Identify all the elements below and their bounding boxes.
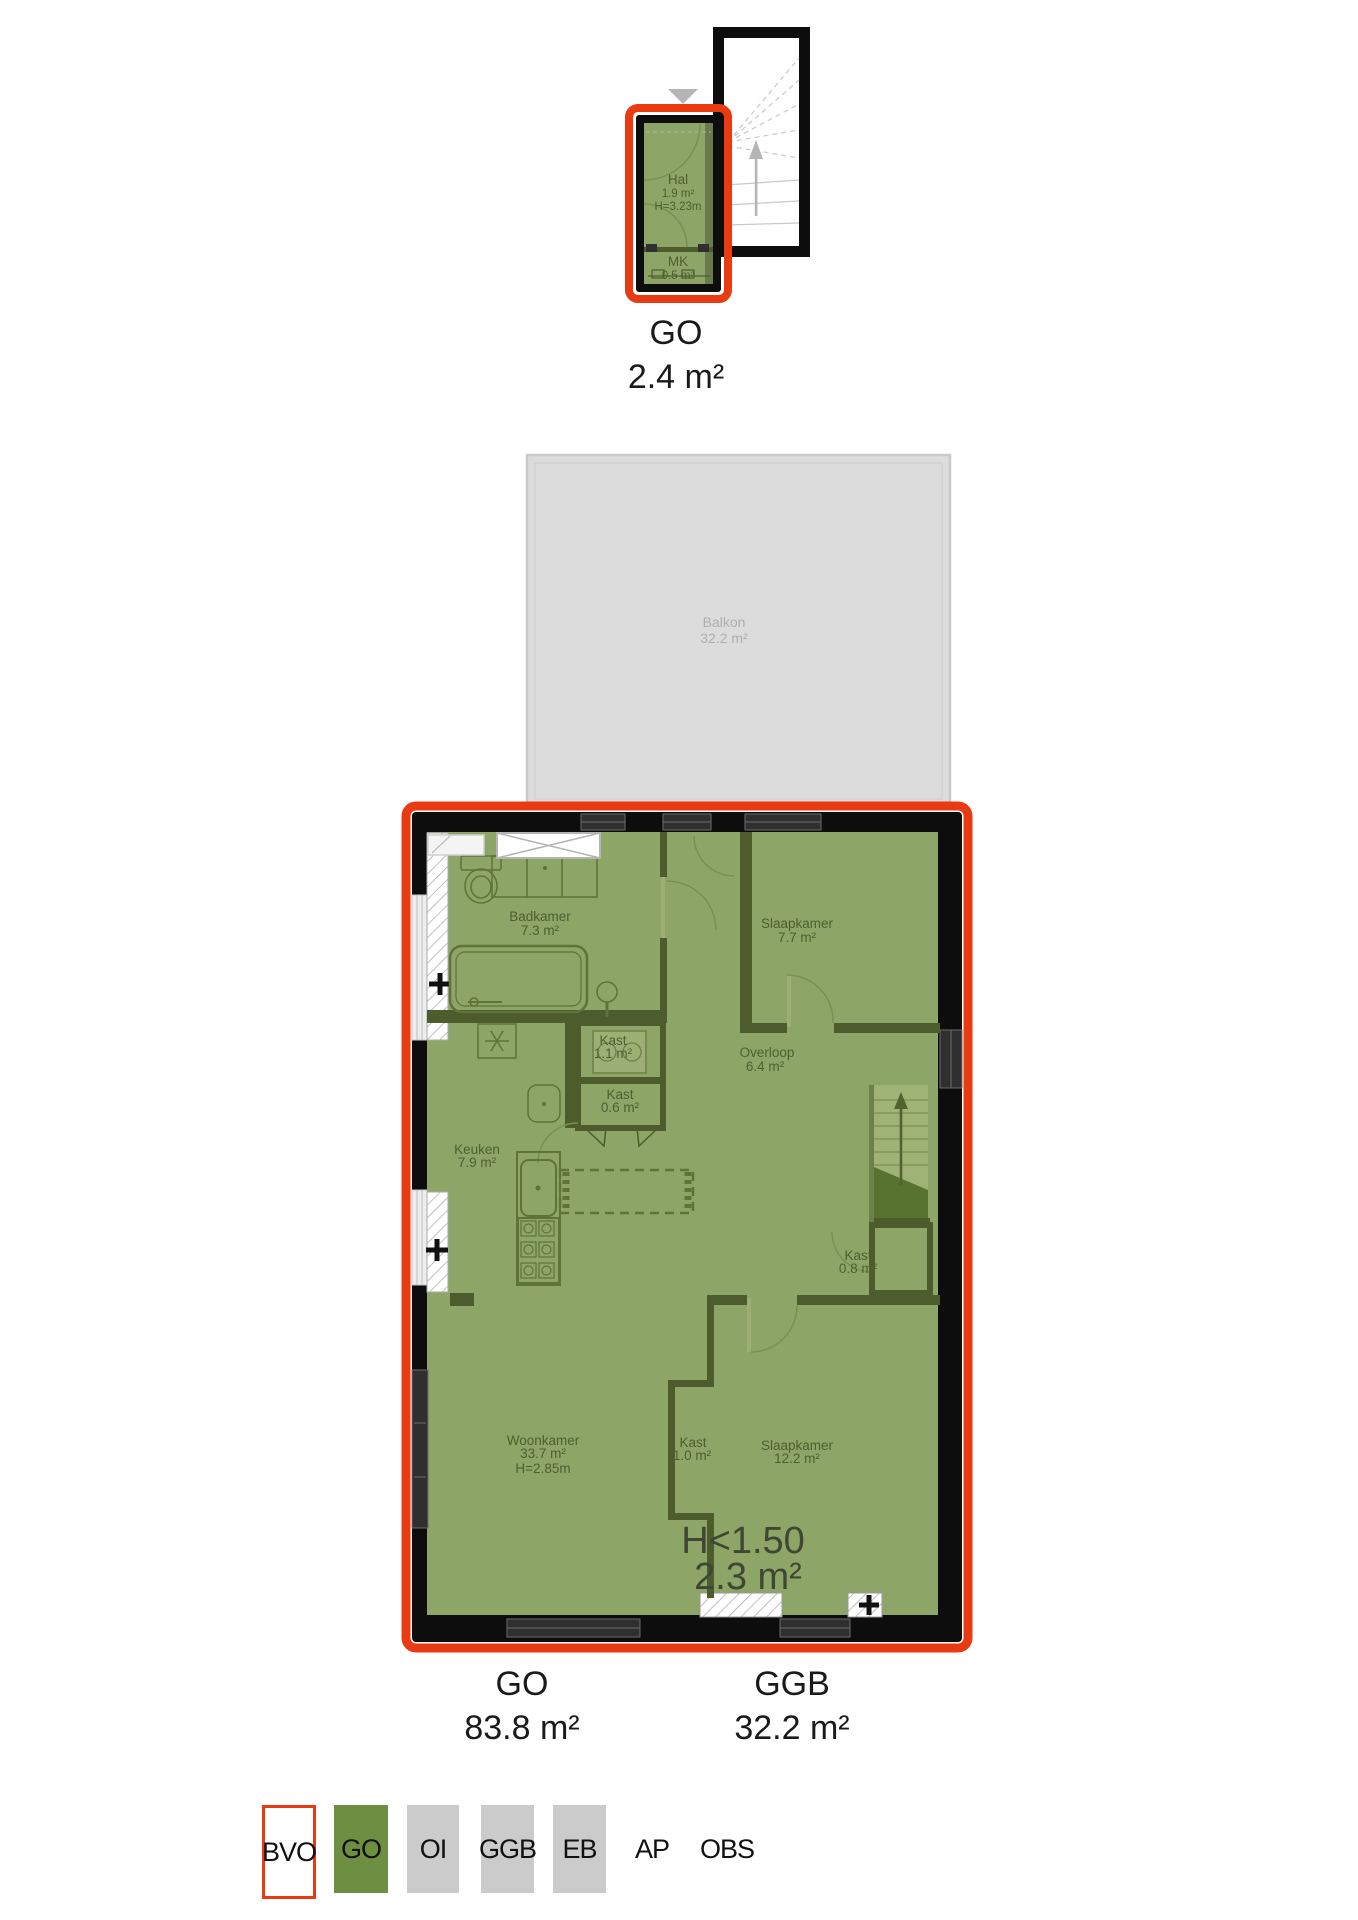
main-ggb-area: 32.2 m²: [672, 1706, 912, 1750]
main-ggb-code: GGB: [672, 1662, 912, 1706]
go-area-fill: [427, 832, 938, 1615]
upper-floorplan: Hal 1.9 m² H=3.23m MK 0.5 m²: [600, 20, 830, 310]
balkon-label: Balkon: [703, 614, 746, 630]
legend-item-ap: AP: [620, 1805, 684, 1893]
kast-08-box: [872, 1225, 930, 1293]
upper-summary-label: GO 2.4 m²: [556, 311, 796, 399]
balkon-area: Balkon 32.2 m²: [527, 455, 950, 807]
main-go-code: GO: [402, 1662, 642, 1706]
kast10-area: 1.0 m²: [673, 1448, 712, 1463]
upper-summary-code: GO: [556, 311, 796, 355]
hal-area: 1.9 m²: [662, 188, 695, 200]
low-headroom-area: 2.3 m²: [694, 1556, 802, 1598]
main-go-label: GO 83.8 m²: [402, 1662, 642, 1750]
slaapkamer2-area: 12.2 m²: [774, 1451, 820, 1466]
legend-item-go: GO: [334, 1805, 388, 1893]
entry-arrow-icon: [668, 89, 698, 104]
kast08-area: 0.8 m²: [839, 1261, 878, 1276]
floorplan-page: Hal 1.9 m² H=3.23m MK 0.5 m² GO 2.4 m² B…: [0, 0, 1358, 1920]
mk-area: 0.5 m²: [662, 270, 695, 282]
hal-height: H=3.23m: [655, 201, 702, 213]
badkamer-area: 7.3 m²: [521, 923, 560, 938]
legend-item-oi: OI: [407, 1805, 459, 1893]
legend-item-obs: OBS: [694, 1805, 760, 1893]
stairs: [869, 1085, 928, 1222]
main-floorplan: Balkon 32.2 m²: [390, 440, 990, 1660]
legend-item-ggb: GGB: [481, 1805, 534, 1893]
slaapkamer1-label: Slaapkamer: [761, 916, 834, 931]
kast11-area: 1.1 m²: [594, 1046, 633, 1061]
overloop-area: 6.4 m²: [746, 1059, 785, 1074]
legend-item-eb: EB: [553, 1805, 606, 1893]
hal-unit: Hal 1.9 m² H=3.23m MK 0.5 m²: [629, 108, 728, 299]
legend-item-bvo: BVO: [262, 1805, 316, 1899]
main-ggb-label: GGB 32.2 m²: [672, 1662, 912, 1750]
slaapkamer1-area: 7.7 m²: [778, 930, 817, 945]
kast06-area: 0.6 m²: [601, 1100, 640, 1115]
woonkamer-area: 33.7 m²: [520, 1446, 566, 1461]
badkamer-label: Badkamer: [509, 909, 571, 924]
upper-summary-area: 2.4 m²: [556, 355, 796, 399]
skylight: [428, 833, 600, 858]
main-go-area: 83.8 m²: [402, 1706, 642, 1750]
overloop-label: Overloop: [740, 1045, 795, 1060]
balkon-area-value: 32.2 m²: [700, 630, 748, 646]
mk-label: MK: [668, 254, 688, 269]
woonkamer-height: H=2.85m: [515, 1461, 570, 1476]
keuken-area: 7.9 m²: [458, 1155, 497, 1170]
hal-label: Hal: [668, 172, 688, 187]
